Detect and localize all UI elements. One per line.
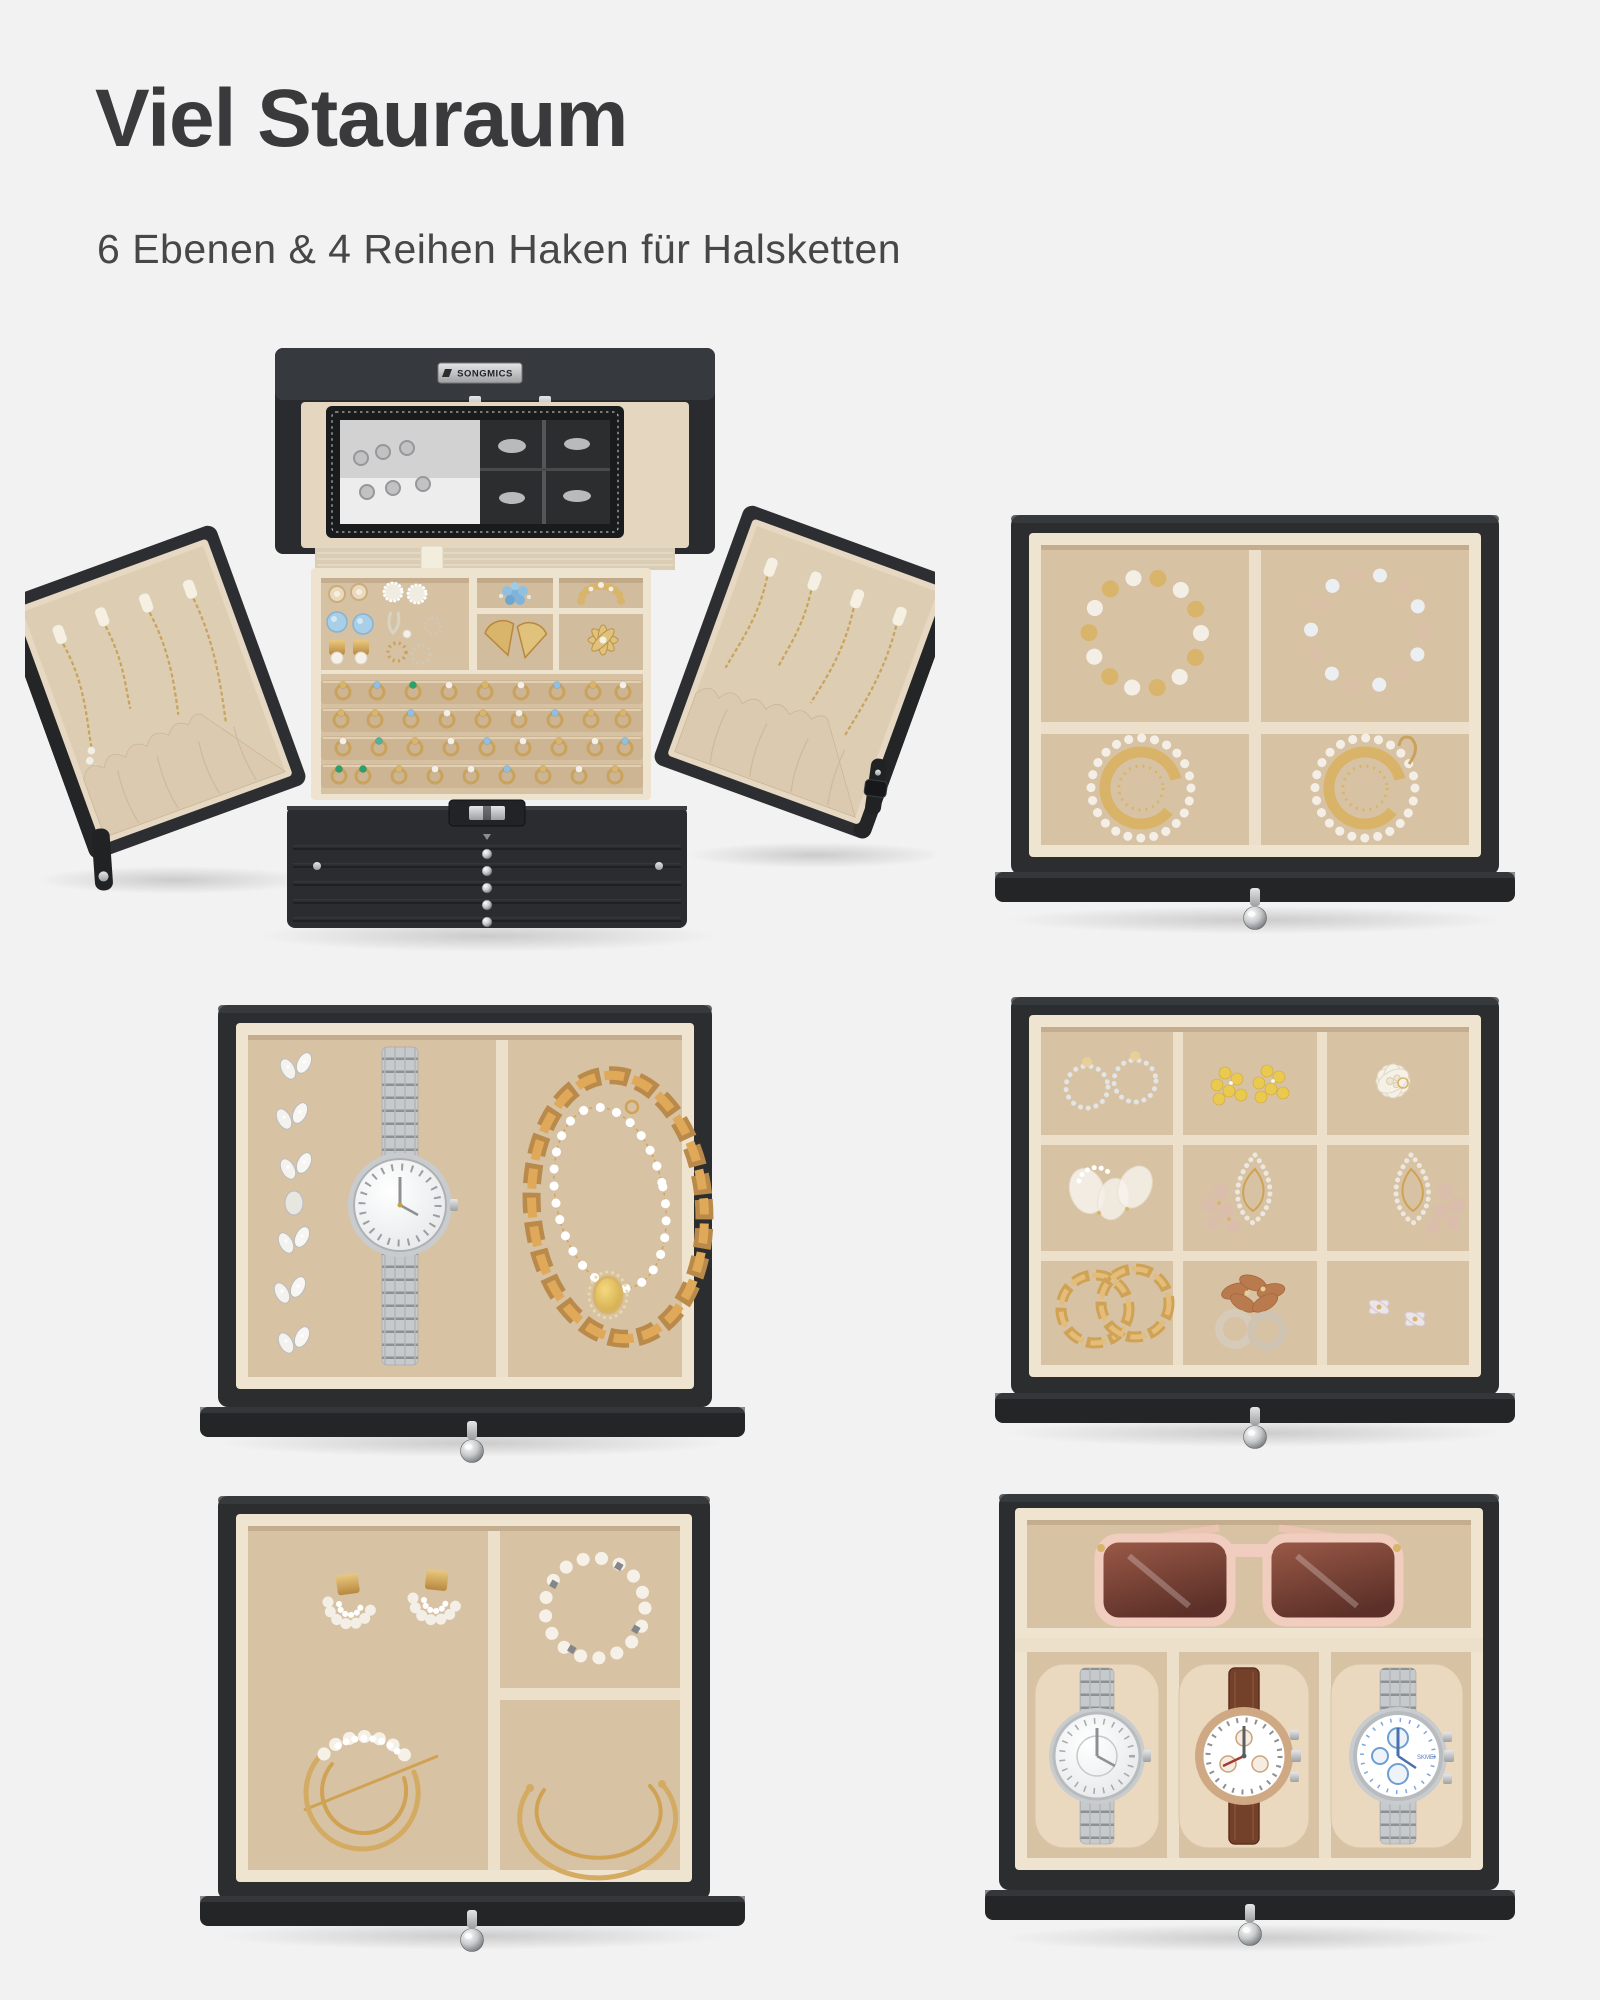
mirror [326, 406, 624, 538]
ring-tray [321, 674, 643, 794]
side-screw-icon [655, 862, 663, 870]
brooch-compartments [477, 578, 643, 670]
page-title: Viel Stauraum [95, 72, 627, 166]
divider [1167, 1652, 1179, 1858]
songmics-logo-plate: SONGMICS [438, 363, 522, 383]
photo-drawer-earring-grid [995, 985, 1515, 1455]
divider [1319, 1652, 1331, 1858]
photo-drawer-watches-sunglasses: SKMEI [985, 1488, 1515, 1963]
mirror-lid: SONGMICS [275, 348, 715, 554]
divider [1249, 545, 1261, 845]
lock [449, 800, 525, 826]
page-subtitle: 6 Ebenen & 4 Reihen Haken für Halsketten [97, 226, 901, 273]
divider [1015, 1638, 1483, 1652]
photo-drawer-watch-necklace [200, 995, 745, 1465]
side-screw-icon [313, 862, 321, 870]
photo-drawer-bracelets-earrings [995, 500, 1515, 945]
divider [500, 1688, 680, 1700]
drawer-stack-front [287, 800, 687, 928]
left-necklace-door [25, 523, 320, 896]
photo-drawer-hair-accessories [200, 1488, 745, 1958]
photo-open-jewelry-box: SONGMICS [25, 340, 935, 960]
top-tray [311, 568, 651, 800]
divider [488, 1526, 500, 1870]
product-infographic-page: Viel Stauraum 6 Ebenen & 4 Reihen Haken … [0, 0, 1600, 2000]
songmics-logo-text: SONGMICS [457, 369, 513, 380]
divider [496, 1035, 508, 1377]
divider [1041, 722, 1469, 734]
watch-brand-text: SKMEI [1417, 1755, 1436, 1761]
gold-flower-brooch [588, 625, 618, 655]
sunglasses-compartment [1027, 1520, 1471, 1628]
